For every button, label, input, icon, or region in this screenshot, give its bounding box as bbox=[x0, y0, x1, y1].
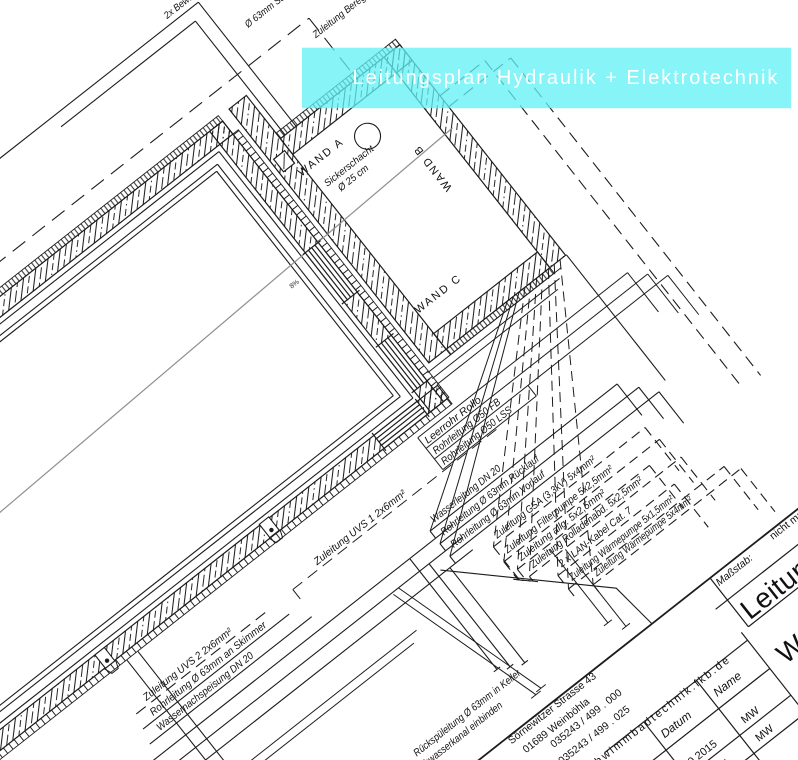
svg-text:Leitungsplan Hydraulik + Elekt: Leitungsplan Hydraulik + Elektrotechnik bbox=[353, 67, 780, 89]
